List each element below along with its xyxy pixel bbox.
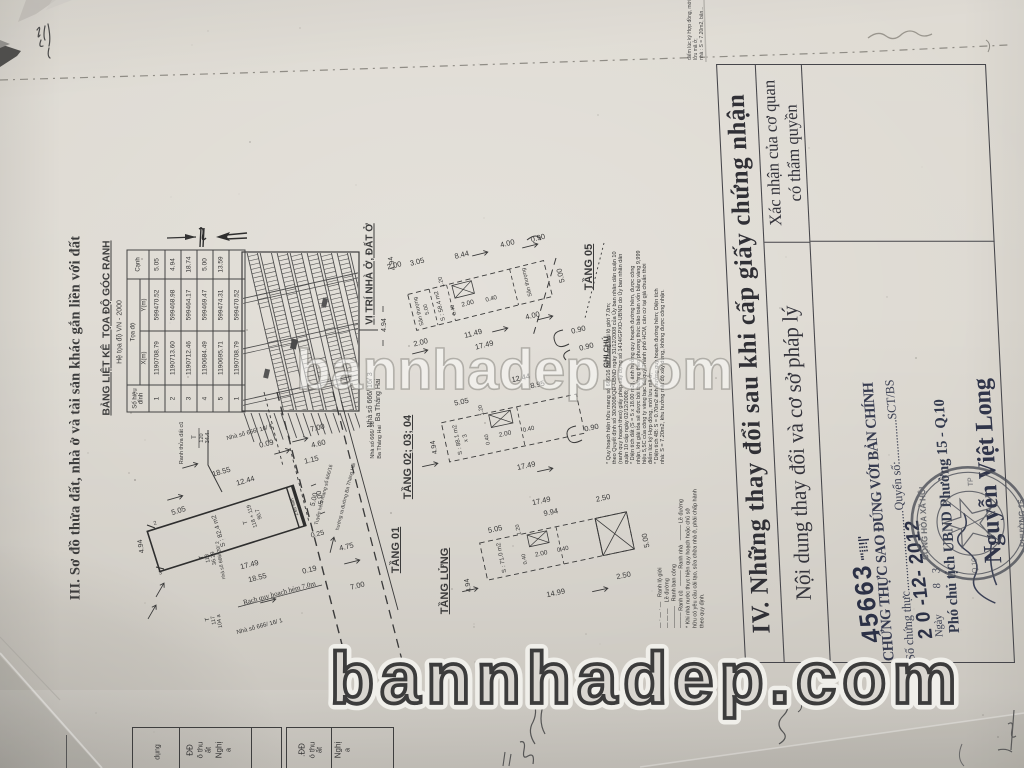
svg-text:0.40: 0.40 <box>522 425 535 433</box>
svg-text:2.00: 2.00 <box>461 299 475 309</box>
svg-text:2.50: 2.50 <box>595 492 611 504</box>
svg-text:2.00: 2.00 <box>534 549 548 559</box>
svg-text:hướng ra đường Ba Tháng Hai: hướng ra đường Ba Tháng Hai <box>335 463 358 531</box>
svg-text:7.00: 7.00 <box>309 421 325 433</box>
svg-text:4.94: 4.94 <box>137 539 146 554</box>
svg-text:5.05: 5.05 <box>487 523 503 535</box>
svg-text:34.4: 34.4 <box>205 433 211 444</box>
svg-text:0.90: 0.90 <box>530 232 546 244</box>
svg-text:9.94: 9.94 <box>543 506 559 518</box>
svg-text:0.40: 0.40 <box>557 546 570 554</box>
svg-text:5.05: 5.05 <box>170 504 187 517</box>
svg-text:5.00: 5.00 <box>554 267 566 283</box>
svg-text:1.15: 1.15 <box>303 453 319 465</box>
svg-text:Ranh thửa đất cũ: Ranh thửa đất cũ <box>178 422 185 465</box>
svg-text:Q.10: Q.10 <box>970 558 979 573</box>
svg-text:4.60: 4.60 <box>310 437 326 449</box>
svg-text:0.40: 0.40 <box>521 553 529 565</box>
svg-text:7.00: 7.00 <box>349 579 365 591</box>
svg-text:T: T <box>192 435 198 439</box>
svg-text:4.75: 4.75 <box>338 540 354 552</box>
svg-text:0.09: 0.09 <box>258 437 274 449</box>
svg-text:12.44: 12.44 <box>235 474 256 488</box>
svg-text:2.50: 2.50 <box>615 569 631 581</box>
svg-text:8.44: 8.44 <box>454 249 470 261</box>
svg-text:4.94: 4.94 <box>430 440 440 455</box>
svg-text:Sân thượng: Sân thượng <box>521 267 534 297</box>
svg-text:T: T <box>243 519 250 525</box>
svg-text:0.40: 0.40 <box>450 304 458 316</box>
svg-text:2: 2 <box>153 520 158 527</box>
svg-text:1.20: 1.20 <box>515 524 523 536</box>
svg-text:0.19: 0.19 <box>301 563 317 575</box>
svg-text:x 3: x 3 <box>462 433 470 443</box>
svg-text:5.00: 5.00 <box>640 532 652 548</box>
svg-text:3.05: 3.05 <box>409 256 425 268</box>
svg-text:Rạch quy hoạch hẻm 7.0m: Rạch quy hoạch hẻm 7.0m <box>242 579 317 606</box>
svg-text:0.90: 0.90 <box>583 422 599 434</box>
svg-text:TP: TP <box>966 477 975 486</box>
svg-text:CỘNG HÒA XÃ HỘI: CỘNG HÒA XÃ HỘI <box>916 487 931 560</box>
svg-text:PHƯỜNG 15: PHƯỜNG 15 <box>1015 499 1024 547</box>
svg-text:2.00: 2.00 <box>498 429 512 439</box>
svg-text:17.49: 17.49 <box>239 558 259 571</box>
svg-text:bannhadep.com: bannhadep.com <box>330 639 963 719</box>
svg-text:bannhadep.com: bannhadep.com <box>296 338 733 402</box>
svg-text:4.00: 4.00 <box>499 237 515 249</box>
svg-text:S : 71.0 m2: S : 71.0 m2 <box>496 541 508 573</box>
svg-text:1.20: 1.20 <box>437 276 445 288</box>
svg-text:18.55: 18.55 <box>247 571 267 584</box>
svg-text:5.00: 5.00 <box>423 303 431 315</box>
svg-text:17.49: 17.49 <box>531 494 551 507</box>
svg-text:17.49: 17.49 <box>516 459 536 472</box>
svg-text:0.40: 0.40 <box>485 295 498 304</box>
svg-text:14.99: 14.99 <box>546 586 566 599</box>
svg-text:Ba Tháng Hai: Ba Tháng Hai <box>377 425 383 459</box>
svg-text:0.40: 0.40 <box>484 434 492 446</box>
